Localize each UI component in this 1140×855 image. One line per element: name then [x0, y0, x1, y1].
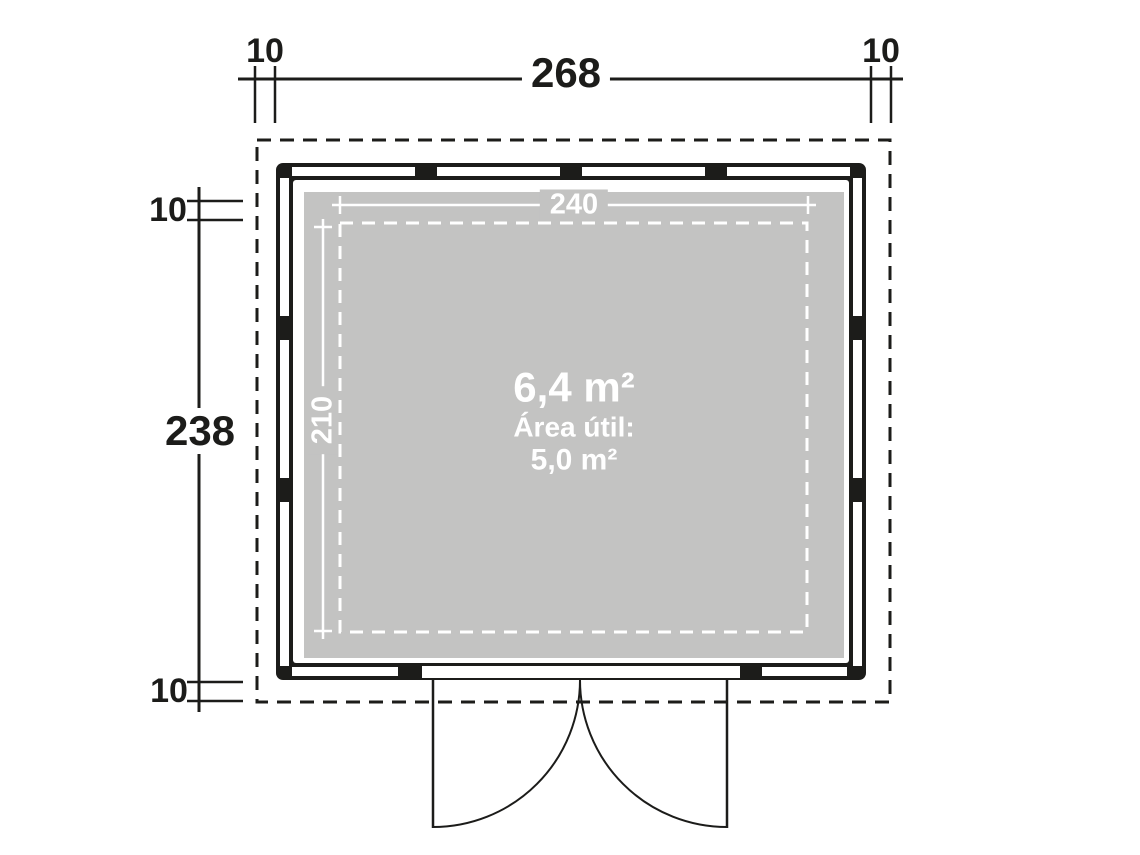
- dim-label-overall-width: 268: [522, 50, 610, 96]
- area-label-block: 6,4 m² Área útil: 5,0 m²: [513, 365, 634, 478]
- area-label-gross: 6,4 m²: [513, 365, 634, 411]
- offset-label-top-right: 10: [862, 34, 900, 68]
- offset-label-side-bottom: 10: [150, 674, 188, 708]
- wall-panel: [582, 167, 705, 176]
- wall-panel: [762, 667, 847, 676]
- door-swing-arc-right: [580, 680, 727, 827]
- dim-label-overall-depth: 238: [156, 408, 244, 454]
- wall-panel: [292, 167, 415, 176]
- wall-panel: [280, 178, 289, 316]
- wall-panel: [292, 667, 398, 676]
- offset-label-side-top: 10: [149, 193, 187, 227]
- wall-panel: [437, 167, 560, 176]
- door-opening: [422, 666, 740, 678]
- wall-panel: [853, 178, 862, 316]
- wall-panel: [727, 167, 850, 176]
- dim-label-inner-width: 240: [540, 190, 608, 221]
- area-label-net: 5,0 m²: [513, 444, 634, 478]
- wall-panel: [853, 340, 862, 478]
- door-swing-arc-left: [433, 680, 580, 827]
- dim-label-inner-depth: 210: [308, 386, 339, 454]
- offset-label-top-left: 10: [246, 34, 284, 68]
- area-caption: Área útil:: [513, 411, 634, 444]
- wall-panel: [280, 502, 289, 666]
- wall-panel: [853, 502, 862, 666]
- floor-plan: 10 268 10 10 238 10 240 210 6,4 m² Área …: [0, 0, 1140, 855]
- wall-panel: [280, 340, 289, 478]
